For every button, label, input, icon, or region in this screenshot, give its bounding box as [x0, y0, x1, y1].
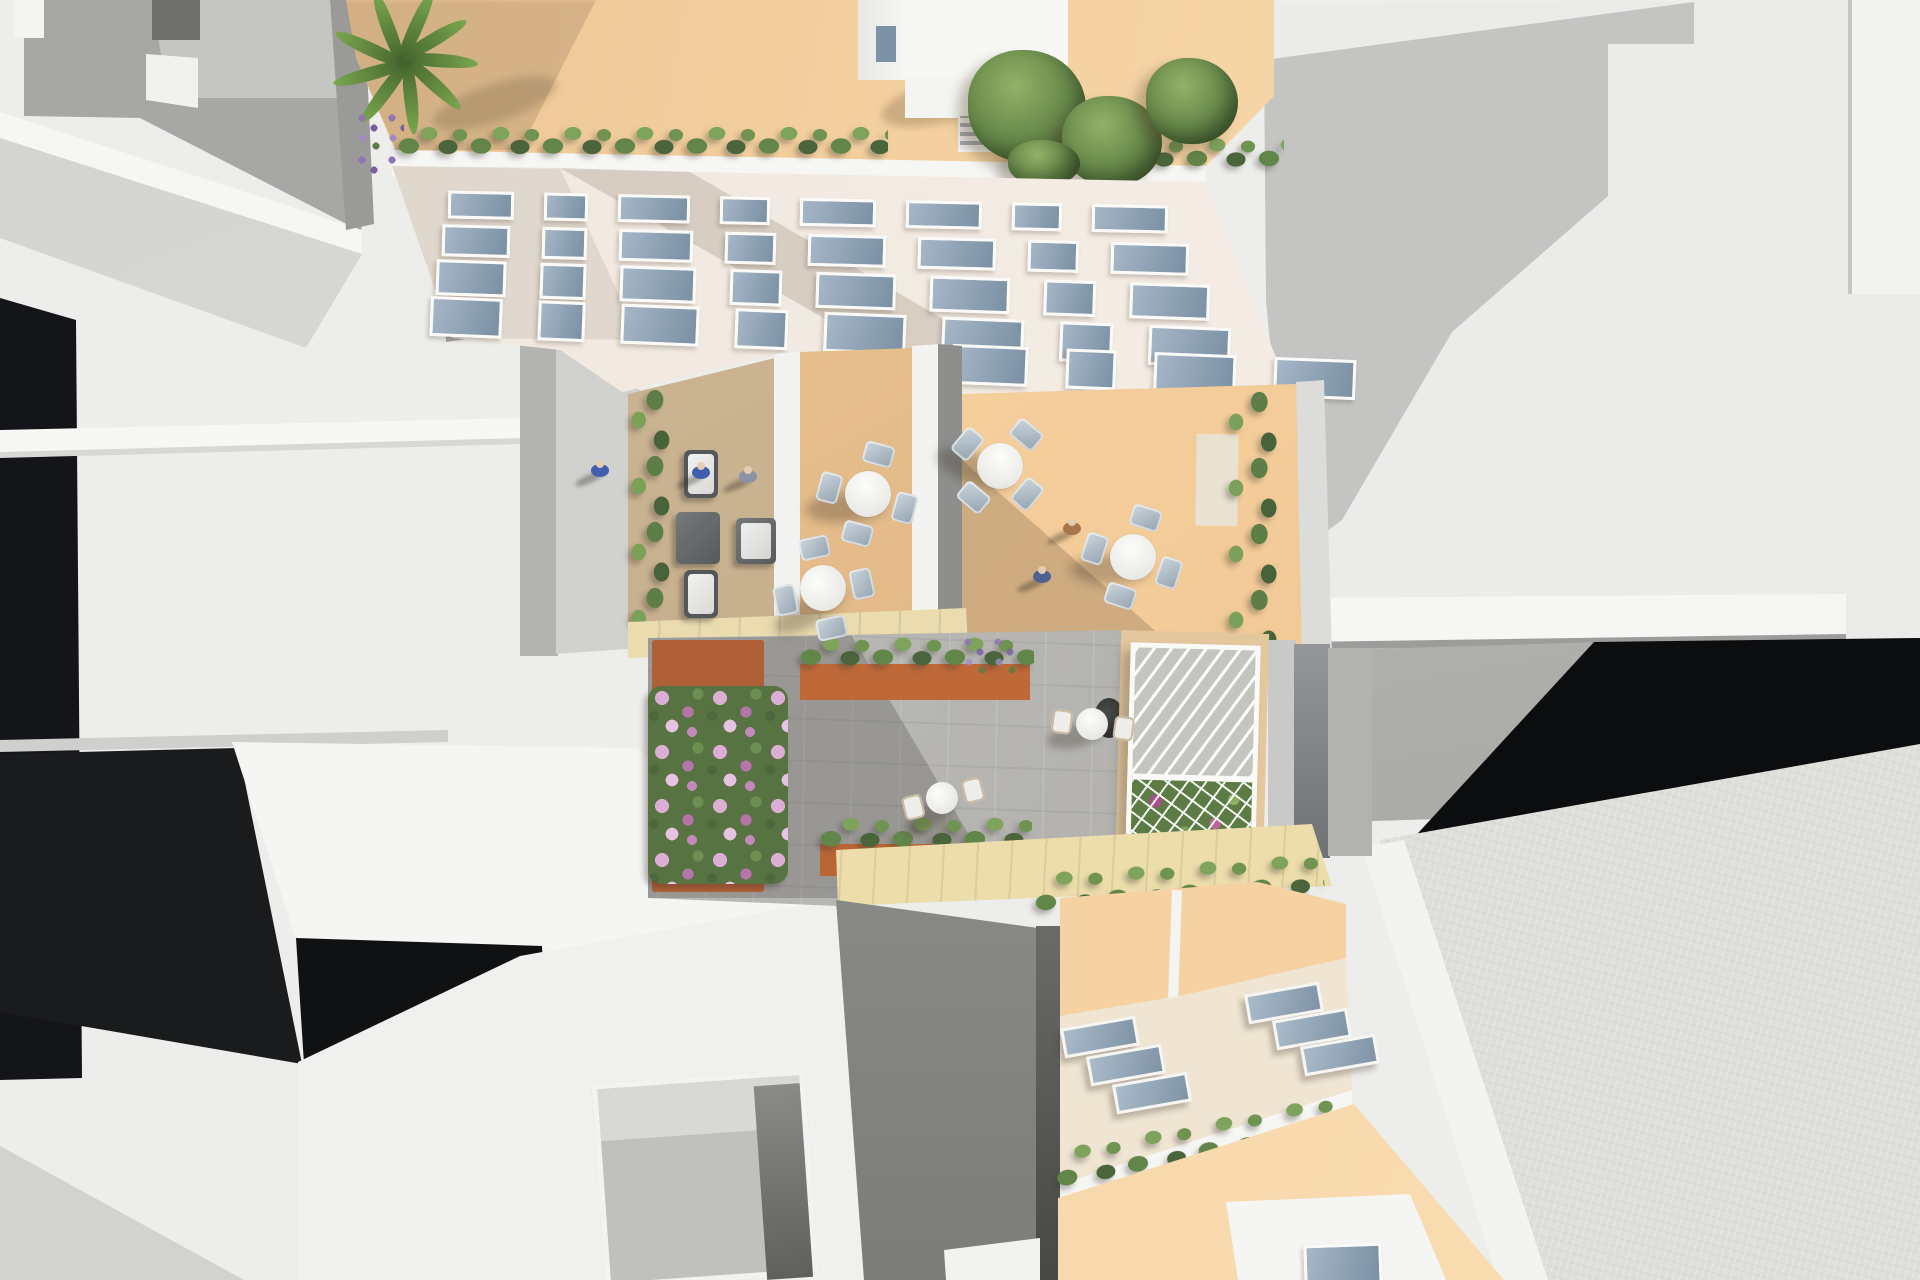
facade-window [1043, 279, 1096, 317]
facade-window [734, 308, 789, 350]
facade-window [619, 229, 694, 263]
lounge-armchair [684, 570, 718, 618]
penthouse-roof-slot [876, 26, 896, 62]
facade-window [729, 269, 782, 307]
lightwell-east-face [754, 1083, 813, 1280]
aerial-render-scene [0, 0, 1920, 1280]
facade-window [442, 224, 511, 258]
ottoman-cushion [741, 523, 771, 559]
greenhouse-glass-roof [1132, 647, 1255, 778]
facade-window [544, 192, 589, 221]
facade-window [725, 232, 777, 265]
facade-window [620, 304, 700, 347]
facade-window [619, 265, 696, 304]
facade-window [720, 196, 771, 225]
facade-window [823, 312, 907, 355]
person-head [744, 466, 752, 474]
facade-window [537, 300, 586, 342]
southwest-lightwell [591, 1069, 819, 1280]
person-head [1038, 566, 1046, 574]
northwest-white-pillar [14, 0, 44, 38]
facade-window [448, 190, 515, 219]
lounge-deck-planting [622, 388, 682, 640]
northwest-dark-niche [152, 0, 200, 40]
facade-window [929, 276, 1010, 315]
facade-window [618, 194, 691, 224]
armchair-cushion [688, 574, 714, 614]
person-head [1068, 518, 1076, 526]
chair [1050, 709, 1073, 736]
facade-window [542, 227, 588, 260]
facade-window [808, 234, 887, 268]
lounge-ottoman [676, 512, 720, 564]
east-wall-strip-mid [1328, 648, 1372, 856]
flower-bed-blossoms [648, 686, 788, 884]
chair [1112, 715, 1135, 742]
person-head [596, 460, 604, 468]
rooftop-tree [1146, 58, 1238, 144]
facade-window [906, 200, 983, 230]
facade-window [436, 259, 507, 297]
east-roof-bright-sliver [1852, 0, 1920, 294]
lounge-ottoman [736, 518, 776, 564]
facade-window [951, 344, 1029, 387]
planter-upper-flowers [960, 634, 1024, 674]
person-head [697, 462, 705, 470]
greenhouse [1125, 642, 1261, 857]
facade-window [1129, 282, 1210, 321]
facade-window [917, 237, 996, 271]
facade-window [815, 272, 896, 311]
facade-window [1110, 242, 1189, 276]
facade-window [539, 263, 586, 301]
right-deck-hedge [1212, 390, 1298, 646]
facade-window [1092, 204, 1169, 234]
facade-window [429, 296, 503, 339]
rooftop-shrub-row-west [396, 116, 888, 166]
facade-window [1065, 348, 1117, 390]
facade-window [1012, 202, 1063, 231]
south-penthouse-window [1303, 1243, 1382, 1280]
facade-window [800, 198, 877, 228]
west-gray-sliver [520, 340, 558, 656]
facade-window [1027, 240, 1079, 273]
